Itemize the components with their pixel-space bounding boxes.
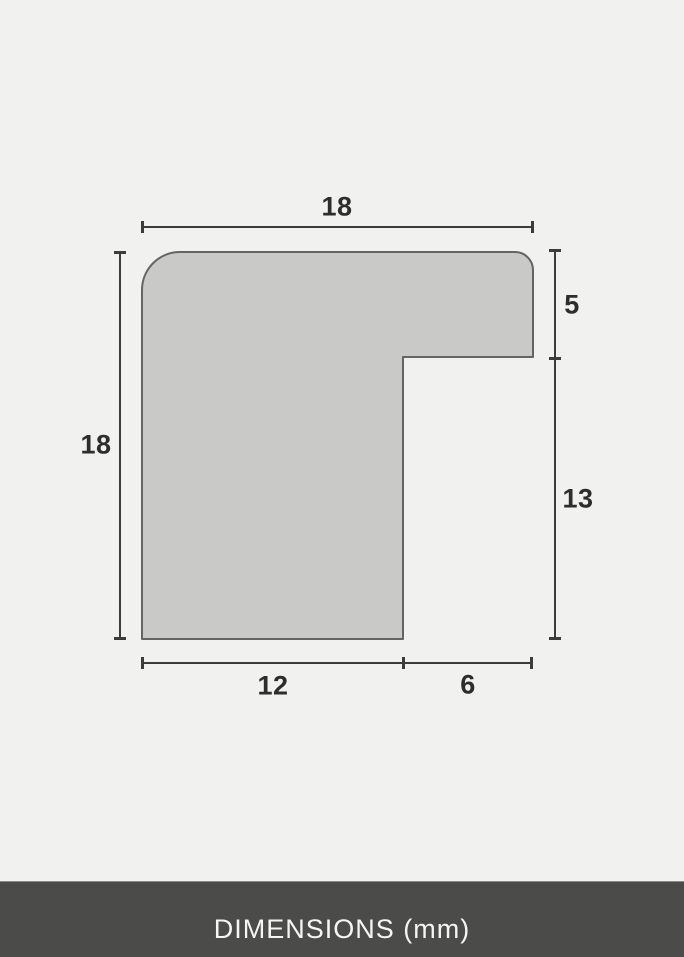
tick-bottom-middle [402,657,405,669]
dim-label-right-lower: 13 [562,486,593,513]
dim-line-bottom-width [142,662,532,664]
dim-label-bottom-right: 6 [460,672,476,699]
footer-title: DIMENSIONS (mm) [214,916,470,943]
tick-right-top [549,249,561,252]
tick-right-bottom [549,637,561,640]
dim-label-top-width: 18 [321,194,352,221]
dim-line-left-height [119,252,121,639]
tick-bottom-right [530,657,533,669]
dim-line-right-height [554,250,556,639]
dim-label-bottom-left: 12 [257,673,288,700]
dim-label-right-upper: 5 [564,292,580,319]
tick-left-bottom [114,637,126,640]
tick-left-top [114,251,126,254]
profile-shape-path [142,252,533,639]
dim-label-left-height: 18 [80,432,111,459]
frame-profile-cross-section [0,0,684,957]
tick-bottom-left [141,657,144,669]
tick-top-left [141,221,144,233]
dim-line-top-width [142,226,533,228]
tick-right-middle [549,357,561,360]
tick-top-right [531,221,534,233]
profile-dimension-diagram: 18 18 5 13 12 6 DIMENSIONS (mm) [0,0,684,957]
footer-bar: DIMENSIONS (mm) [0,881,684,957]
